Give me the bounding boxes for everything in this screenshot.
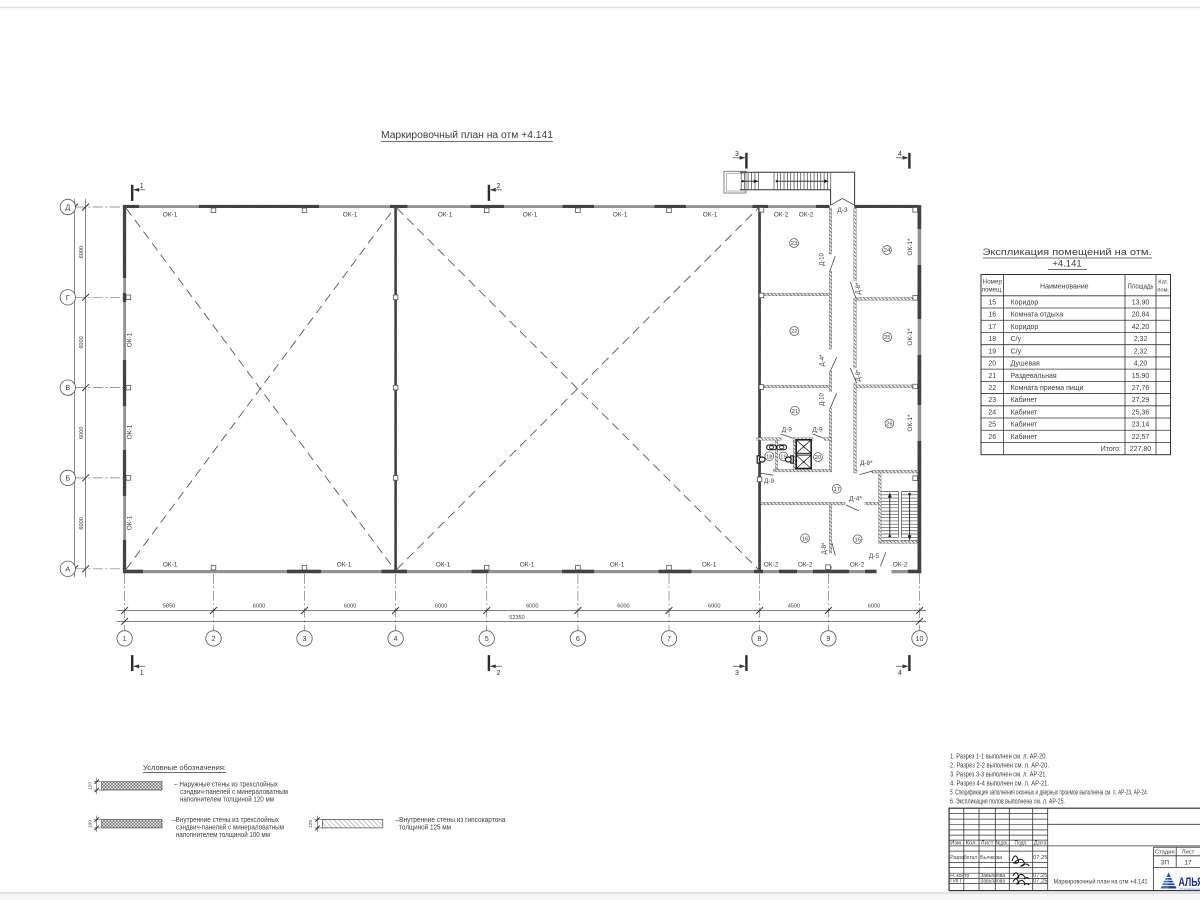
- svg-text:20: 20: [988, 361, 996, 368]
- svg-text:–Внутренние стены из гипсокарт: –Внутренние стены из гипсокартона: [396, 817, 506, 824]
- svg-text:Кабинет: Кабинет: [1011, 408, 1038, 416]
- svg-text:+4.141: +4.141: [1052, 259, 1081, 270]
- svg-text:24: 24: [988, 409, 996, 416]
- svg-text:4. Разрез 4-4 выполнен см. л.: 4. Разрез 4-4 выполнен см. л. АР-21.: [950, 779, 1049, 788]
- svg-text:25: 25: [988, 422, 996, 429]
- svg-text:Д-9: Д-9: [812, 427, 823, 434]
- svg-text:Кабинет: Кабинет: [1011, 421, 1038, 429]
- svg-text:А: А: [65, 564, 70, 573]
- svg-text:Кабинет: Кабинет: [1011, 396, 1038, 404]
- svg-text:Разработал: Разработал: [950, 855, 977, 861]
- svg-text:Лист: Лист: [981, 840, 994, 846]
- svg-text:Номер: Номер: [983, 279, 1003, 286]
- svg-text:26: 26: [988, 434, 996, 441]
- svg-text:2. Разрез 2-2 выполнен см. л.: 2. Разрез 2-2 выполнен см. л. АР-20.: [950, 761, 1049, 770]
- svg-text:ОК-2: ОК-2: [798, 562, 813, 569]
- svg-text:пом.: пом.: [1157, 288, 1169, 294]
- svg-text:42,20: 42,20: [1132, 324, 1150, 331]
- svg-text:4: 4: [394, 634, 398, 643]
- svg-text:6000: 6000: [708, 603, 720, 609]
- svg-text:16: 16: [988, 312, 996, 319]
- svg-text:Д-10: Д-10: [819, 252, 825, 265]
- svg-text:4500: 4500: [788, 603, 800, 609]
- svg-text:6000: 6000: [79, 517, 85, 529]
- svg-text:07.25: 07.25: [1033, 855, 1048, 861]
- svg-text:24: 24: [884, 248, 891, 254]
- svg-text:1: 1: [123, 634, 127, 643]
- svg-text:В: В: [65, 383, 70, 392]
- svg-text:Д-10: Д-10: [820, 392, 826, 405]
- svg-text:С/у: С/у: [1011, 336, 1022, 343]
- svg-text:наполнителем толщиной 120 мм: наполнителем толщиной 120 мм: [180, 796, 274, 804]
- svg-text:6: 6: [576, 634, 580, 643]
- svg-text:ОК-1: ОК-1: [127, 332, 134, 347]
- svg-text:27,29: 27,29: [1132, 397, 1150, 404]
- svg-text:6000: 6000: [253, 603, 265, 609]
- svg-text:17: 17: [988, 324, 996, 331]
- svg-text:20,84: 20,84: [1132, 312, 1150, 319]
- svg-text:27,76: 27,76: [1132, 385, 1150, 392]
- svg-text:–Внутренние стены из трехслойн: –Внутренние стены из трехслойных: [172, 816, 279, 824]
- svg-text:15: 15: [854, 538, 860, 544]
- svg-text:9: 9: [826, 634, 830, 643]
- svg-text:6000: 6000: [79, 427, 85, 439]
- svg-text:Бычкова: Бычкова: [980, 855, 1003, 861]
- svg-text:ОК-1*: ОК-1*: [907, 238, 914, 256]
- svg-text:Д-8*: Д-8*: [856, 282, 862, 294]
- svg-text:Условные обозначения:: Условные обозначения:: [143, 763, 226, 772]
- svg-text:Раздевальная: Раздевальная: [1011, 373, 1057, 380]
- svg-text:4: 4: [898, 151, 902, 158]
- svg-text:23: 23: [791, 241, 797, 247]
- svg-text:Д-8*: Д-8*: [822, 542, 828, 554]
- svg-text:Изм.: Изм.: [950, 840, 963, 846]
- svg-text:21: 21: [988, 373, 996, 380]
- svg-text:25,36: 25,36: [1132, 409, 1150, 416]
- svg-text:ГИП: ГИП: [950, 878, 961, 884]
- svg-text:1: 1: [140, 183, 144, 190]
- svg-text:6. Экспликация полов выполнена: 6. Экспликация полов выполнена см. л. АР…: [950, 797, 1065, 806]
- svg-text:ОК-2: ОК-2: [893, 562, 908, 569]
- svg-text:Подп.: Подп.: [1015, 840, 1028, 846]
- svg-text:5: 5: [485, 634, 489, 643]
- svg-text:ОК-2: ОК-2: [799, 211, 814, 218]
- svg-text:помещ.: помещ.: [982, 287, 1004, 294]
- svg-text:1: 1: [140, 670, 144, 677]
- svg-text:13,90: 13,90: [1132, 299, 1150, 306]
- svg-text:17: 17: [1184, 860, 1192, 867]
- svg-text:22: 22: [988, 385, 996, 392]
- svg-text:21: 21: [792, 409, 798, 415]
- svg-text:ОК-1: ОК-1: [703, 211, 718, 218]
- svg-text:ОК-1: ОК-1: [613, 211, 628, 218]
- svg-text:3: 3: [735, 151, 739, 158]
- svg-text:ОК-1: ОК-1: [610, 562, 625, 569]
- svg-text:Дата: Дата: [1034, 840, 1048, 846]
- svg-text:3: 3: [735, 670, 739, 677]
- svg-text:15,90: 15,90: [1132, 373, 1150, 380]
- svg-text:227,80: 227,80: [1130, 446, 1152, 453]
- svg-text:125: 125: [308, 820, 314, 828]
- svg-text:3: 3: [303, 634, 307, 643]
- svg-text:ОК-1*: ОК-1*: [907, 414, 914, 432]
- svg-text:Комната приема пищи: Комната приема пищи: [1011, 385, 1084, 392]
- svg-text:100: 100: [88, 820, 94, 828]
- svg-text:ОК-1: ОК-1: [337, 562, 352, 569]
- svg-text:26: 26: [886, 422, 892, 428]
- svg-text:Д-8*: Д-8*: [860, 460, 873, 467]
- svg-text:толщиной 125 мм: толщиной 125 мм: [399, 824, 451, 832]
- svg-text:2: 2: [496, 670, 500, 677]
- svg-text:сэндвич-панелей с минераловатн: сэндвич-панелей с минераловатным: [176, 824, 284, 832]
- svg-text:6000: 6000: [344, 603, 356, 609]
- svg-text:07.25: 07.25: [1033, 878, 1048, 884]
- svg-text:Д-4*: Д-4*: [849, 496, 862, 503]
- svg-text:сэндвич-панелей с минераловатн: сэндвич-панелей с минераловатным: [180, 788, 288, 796]
- svg-text:Наименование: Наименование: [1040, 284, 1089, 291]
- svg-text:Д-5: Д-5: [869, 553, 880, 560]
- svg-text:25: 25: [884, 335, 890, 341]
- svg-text:6000: 6000: [526, 603, 538, 609]
- svg-text:ОК-1: ОК-1: [343, 211, 358, 218]
- svg-text:– Наружные стены из трехслойны: – Наружные стены из трехслойных: [174, 781, 278, 789]
- svg-text:С/у: С/у: [1011, 348, 1022, 355]
- svg-text:ОК-2: ОК-2: [850, 562, 865, 569]
- svg-text:Б: Б: [65, 474, 70, 483]
- svg-text:2: 2: [496, 183, 500, 190]
- svg-text:Д-4*: Д-4*: [820, 354, 826, 366]
- svg-text:2: 2: [212, 634, 216, 643]
- svg-text:Д: Д: [65, 203, 70, 212]
- svg-text:ОК-2: ОК-2: [774, 211, 789, 218]
- svg-text:8: 8: [758, 634, 762, 643]
- svg-text:23: 23: [988, 397, 996, 404]
- svg-text:Маркировочный план на отм +4.1: Маркировочный план на отм +4.141: [1054, 877, 1148, 885]
- svg-text:ОК-1: ОК-1: [702, 562, 717, 569]
- svg-text:Кол.: Кол.: [966, 840, 978, 846]
- svg-text:Лист: Лист: [1182, 850, 1195, 856]
- svg-text:17: 17: [833, 487, 839, 493]
- svg-text:Д-9: Д-9: [764, 478, 775, 485]
- svg-text:ОК-1*: ОК-1*: [907, 328, 914, 346]
- svg-text:ОК-1: ОК-1: [520, 562, 535, 569]
- svg-text:4,20: 4,20: [1134, 361, 1148, 368]
- svg-text:Д-3: Д-3: [837, 207, 848, 214]
- svg-text:2,32: 2,32: [1134, 336, 1148, 343]
- svg-text:23,14: 23,14: [1132, 422, 1150, 429]
- svg-text:наполнителем толщиной 100 мм: наполнителем толщиной 100 мм: [176, 831, 270, 839]
- svg-text:6000: 6000: [868, 603, 880, 609]
- svg-text:10: 10: [916, 634, 924, 643]
- svg-text:22,57: 22,57: [1132, 434, 1150, 441]
- svg-text:Кабинет: Кабинет: [1011, 433, 1038, 441]
- svg-text:Маркировочный план на отм +4.1: Маркировочный план на отм +4.141: [381, 130, 553, 141]
- svg-text:№док.: №док.: [996, 840, 1009, 846]
- svg-text:Коридор: Коридор: [1011, 324, 1039, 331]
- svg-text:ОК-1: ОК-1: [163, 562, 178, 569]
- svg-text:3. Разрез 3-3 выполнен см. л.: 3. Разрез 3-3 выполнен см. л. АР-21.: [950, 770, 1047, 779]
- svg-text:Г: Г: [66, 293, 70, 302]
- svg-text:22: 22: [791, 329, 797, 335]
- svg-text:18: 18: [766, 454, 772, 460]
- svg-text:Экспликация помещений на отм.: Экспликация помещений на отм.: [983, 247, 1152, 258]
- svg-text:1. Разрез 1-1 выполнен см. л.: 1. Разрез 1-1 выполнен см. л. АР-20.: [950, 752, 1047, 761]
- svg-text:16: 16: [802, 537, 808, 543]
- svg-text:Д-8*: Д-8*: [856, 369, 862, 381]
- svg-text:20: 20: [815, 455, 821, 461]
- svg-text:ОК-1: ОК-1: [523, 211, 538, 218]
- svg-text:ОК-1: ОК-1: [436, 562, 451, 569]
- svg-text:Завьялова: Завьялова: [980, 878, 1006, 884]
- svg-text:ОК-2: ОК-2: [764, 562, 779, 569]
- svg-text:52350: 52350: [509, 615, 525, 621]
- svg-text:6000: 6000: [79, 246, 85, 258]
- svg-text:строительная компания: строительная компания: [1179, 888, 1200, 892]
- svg-text:ЗП: ЗП: [1160, 860, 1169, 867]
- svg-text:Итого:: Итого:: [1101, 446, 1121, 453]
- svg-text:120: 120: [88, 782, 94, 790]
- svg-text:6000: 6000: [617, 603, 629, 609]
- svg-text:15: 15: [988, 299, 996, 306]
- svg-text:Кат.: Кат.: [1158, 280, 1168, 286]
- svg-text:6000: 6000: [435, 603, 447, 609]
- svg-text:Площадь: Площадь: [1128, 284, 1154, 291]
- svg-text:ОК-1: ОК-1: [163, 211, 178, 218]
- svg-text:Душевая: Душевая: [1011, 361, 1040, 368]
- svg-text:5. Спецификация заполнения око: 5. Спецификация заполнения оконных и две…: [950, 788, 1148, 797]
- svg-text:5850: 5850: [163, 603, 175, 609]
- svg-text:ОК-1: ОК-1: [438, 211, 453, 218]
- svg-text:7: 7: [667, 634, 671, 643]
- svg-text:4: 4: [898, 670, 902, 677]
- svg-text:6000: 6000: [79, 336, 85, 348]
- svg-text:Комната отдыха: Комната отдыха: [1011, 312, 1064, 319]
- svg-text:19: 19: [988, 348, 996, 355]
- svg-text:ОК-1: ОК-1: [127, 424, 134, 439]
- svg-text:2,32: 2,32: [1134, 348, 1148, 355]
- svg-text:Стадия: Стадия: [1155, 850, 1175, 856]
- svg-text:ОК-1: ОК-1: [127, 515, 134, 530]
- svg-text:Д-9: Д-9: [782, 427, 793, 434]
- svg-text:18: 18: [988, 336, 996, 343]
- svg-text:Коридор: Коридор: [1011, 299, 1039, 306]
